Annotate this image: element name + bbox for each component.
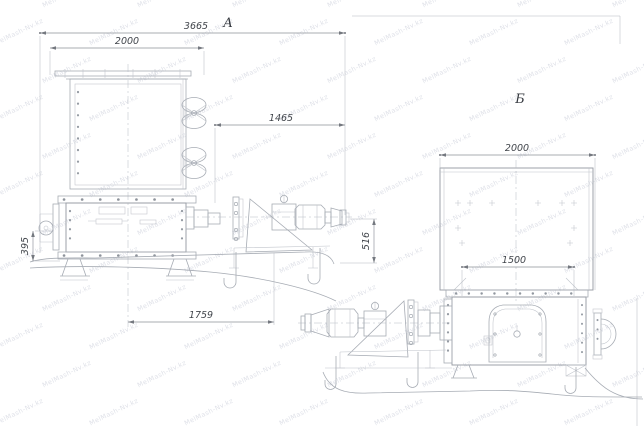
dim-overall-length: 3665: [39, 21, 346, 253]
hidden-hole-crosses: [455, 200, 577, 246]
drawing-canvas: А: [0, 0, 644, 430]
door-handle: [514, 331, 520, 337]
dim-drive-height: 516: [340, 219, 377, 263]
gusset-bracket: [246, 199, 312, 252]
view-b: Б: [298, 92, 643, 399]
view-a: А: [20, 16, 377, 327]
view-a-drive: [186, 194, 352, 288]
view-b-body: [440, 160, 593, 302]
view-b-skid: [323, 368, 643, 399]
dim-label-2000-a: 2000: [115, 36, 139, 47]
dim-label-1500: 1500: [502, 255, 526, 266]
inspection-door: [489, 305, 546, 362]
dim-label-2000-b: 2000: [505, 143, 529, 154]
dim-drive-length: 1465: [214, 113, 345, 203]
anchor-hooks: [325, 352, 418, 390]
dim-label-395: 395: [20, 237, 31, 255]
view-b-drive: [298, 300, 452, 390]
dim-body-width: 2000: [439, 143, 596, 290]
technical-drawing: MelMash-Nv.kzMelMash-Nv.kzMelMash-Nv.kzM…: [0, 0, 644, 430]
dim-hopper-width: 2000: [50, 36, 204, 75]
view-a-label: А: [222, 16, 233, 31]
view-a-hopper: [55, 64, 191, 327]
view-b-housing: [444, 297, 616, 394]
dim-label-516: 516: [361, 232, 372, 250]
sheet-border: [352, 16, 637, 426]
view-b-label: Б: [514, 92, 525, 107]
dim-base-span: 1759: [128, 253, 274, 325]
gusset-bracket: [348, 301, 408, 357]
dim-label-3665: 3665: [184, 21, 208, 32]
dim-label-1465: 1465: [269, 113, 293, 124]
dim-label-1759: 1759: [189, 310, 213, 321]
